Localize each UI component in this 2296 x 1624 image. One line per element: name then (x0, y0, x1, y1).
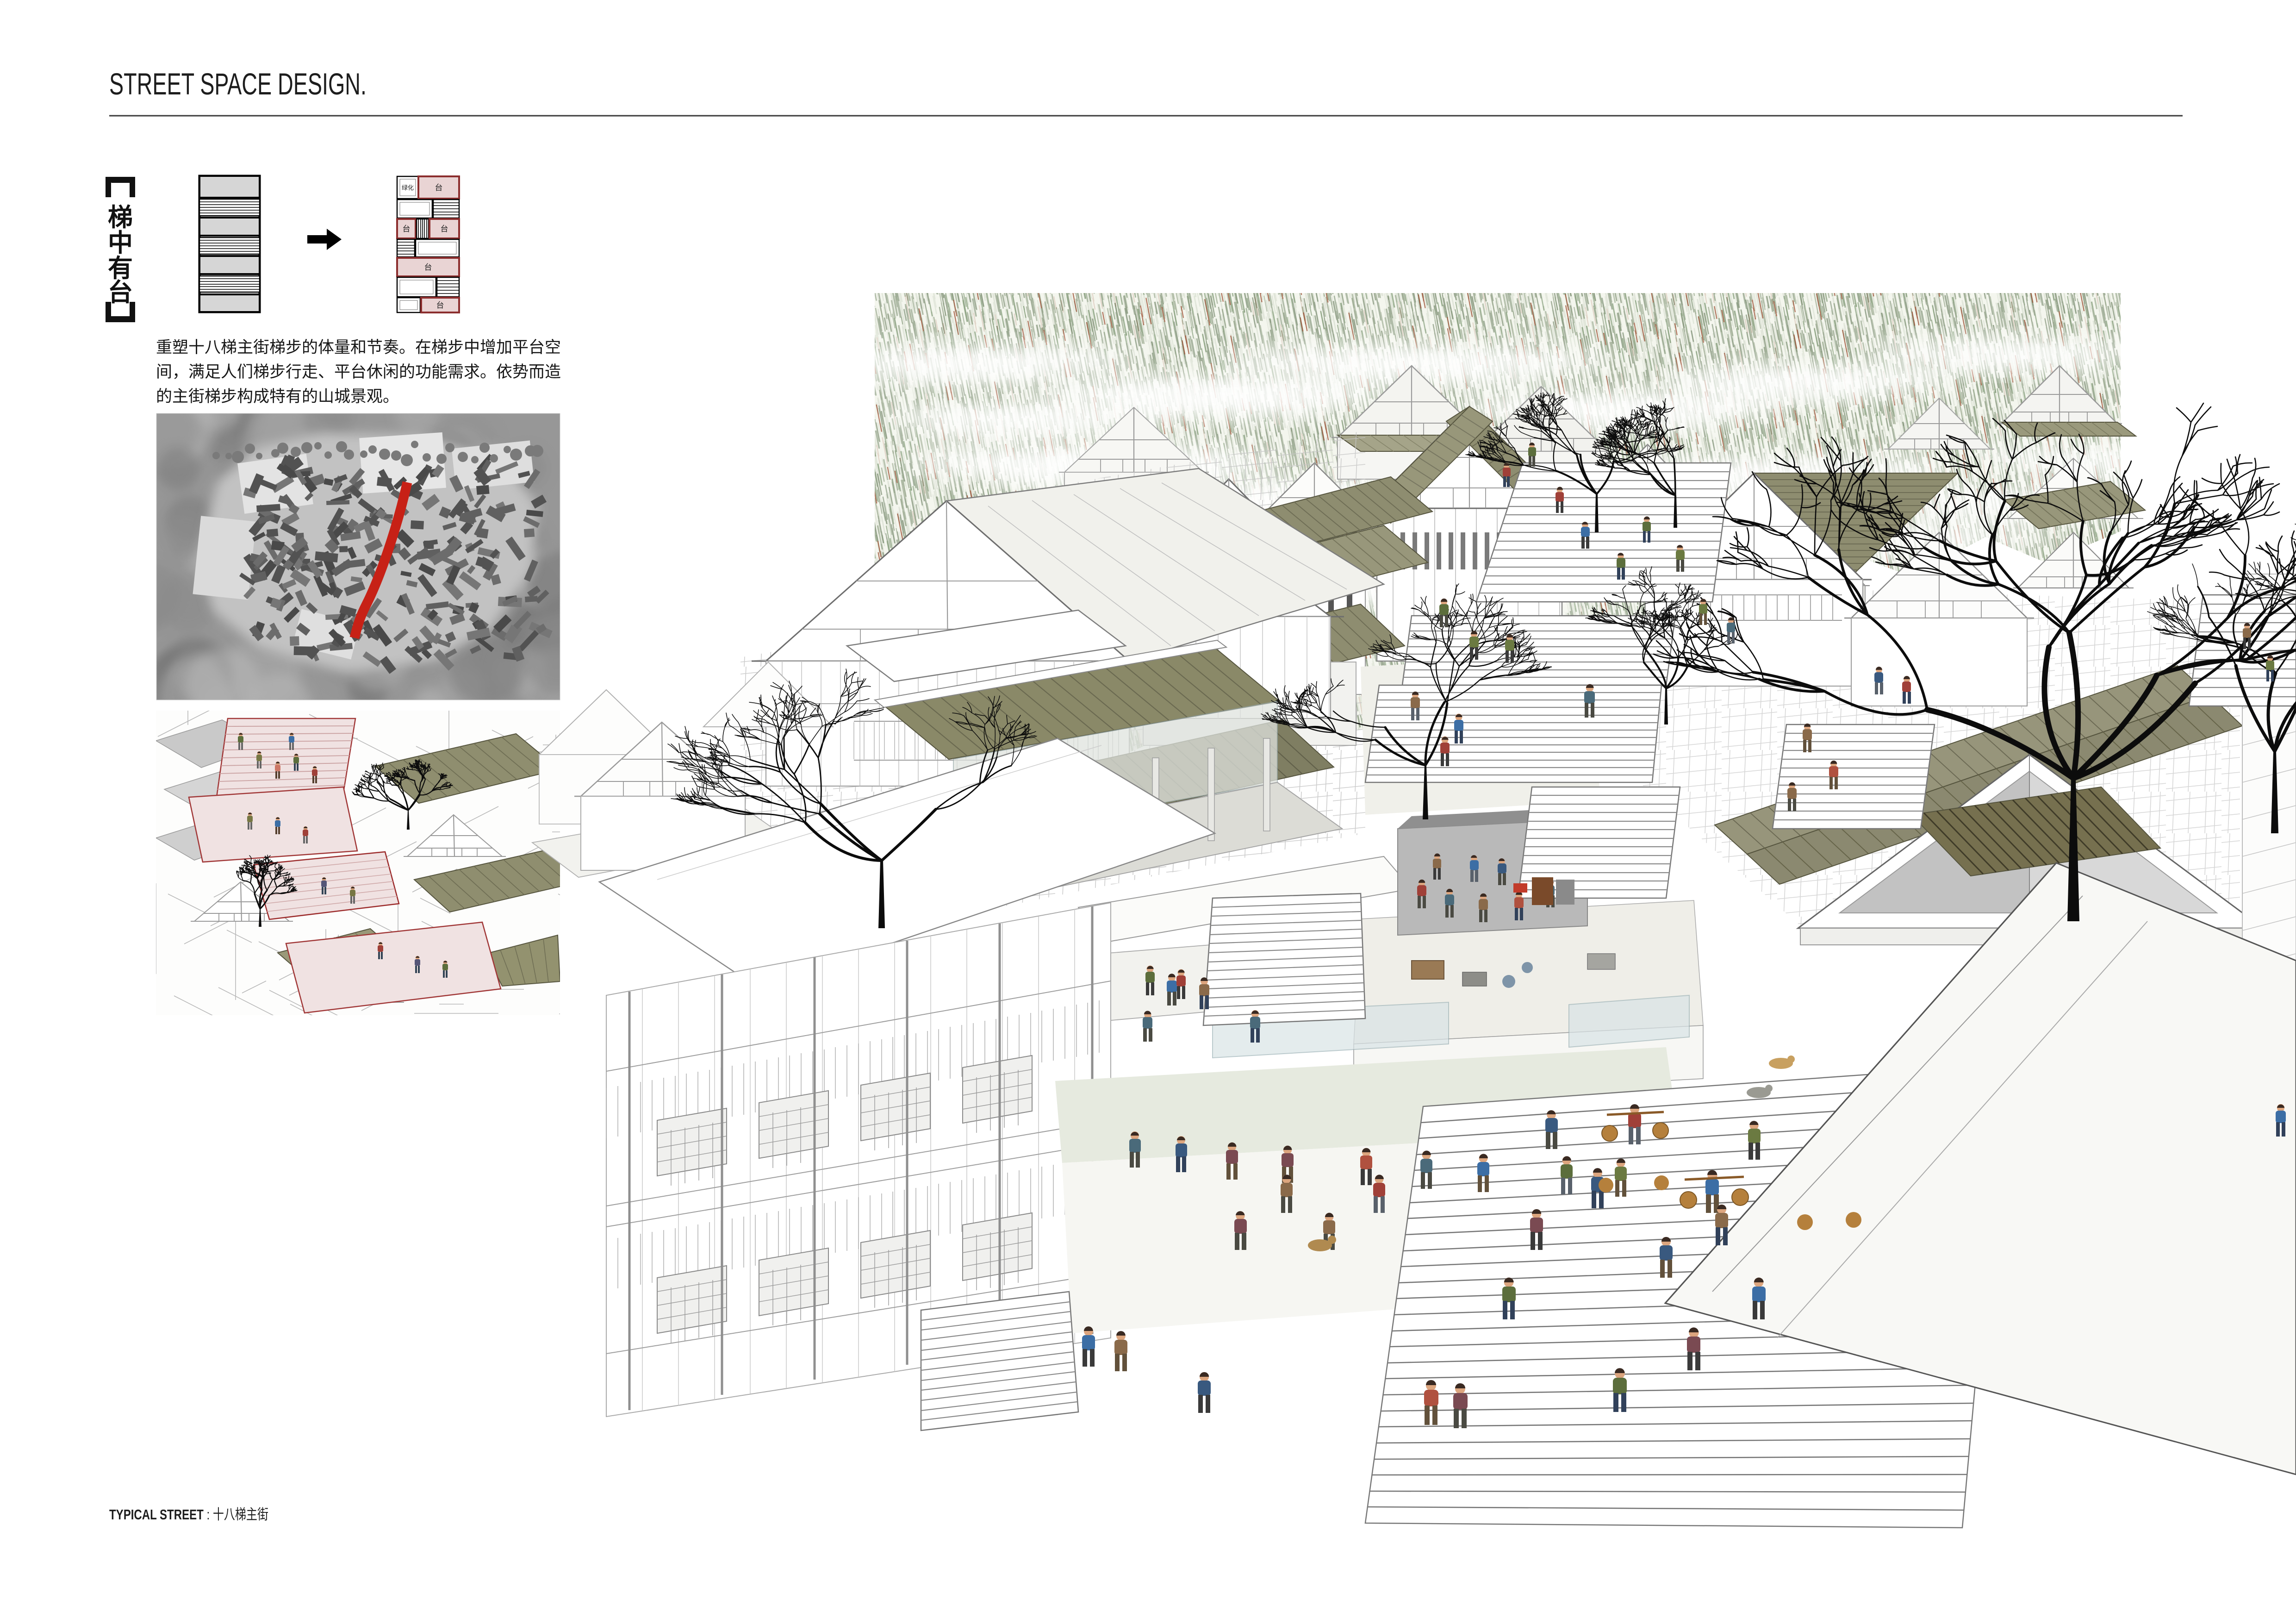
svg-text:台: 台 (403, 225, 411, 233)
svg-text:的主街梯步构成特有的山城景观。: 的主街梯步构成特有的山城景观。 (156, 387, 399, 406)
svg-text:台: 台 (424, 263, 432, 272)
svg-text:台: 台 (108, 279, 133, 306)
svg-text:重塑十八梯主街梯步的体量和节奏。在梯步中增加平台空: 重塑十八梯主街梯步的体量和节奏。在梯步中增加平台空 (156, 338, 561, 356)
svg-text:台: 台 (436, 301, 444, 310)
svg-text:TYPICAL STREET : 十八梯主街: TYPICAL STREET : 十八梯主街 (109, 1506, 268, 1523)
svg-text:间，满足人们梯步行走、平台休闲的功能需求。依势而造: 间，满足人们梯步行走、平台休闲的功能需求。依势而造 (156, 363, 561, 381)
svg-text:台: 台 (441, 225, 448, 233)
svg-text:绿化: 绿化 (402, 184, 414, 191)
svg-text:梯: 梯 (108, 204, 133, 231)
svg-text:台: 台 (435, 183, 443, 192)
svg-text:有: 有 (108, 255, 133, 282)
svg-text:STREET SPACE DESIGN.: STREET SPACE DESIGN. (109, 67, 367, 101)
svg-text:中: 中 (108, 229, 133, 257)
